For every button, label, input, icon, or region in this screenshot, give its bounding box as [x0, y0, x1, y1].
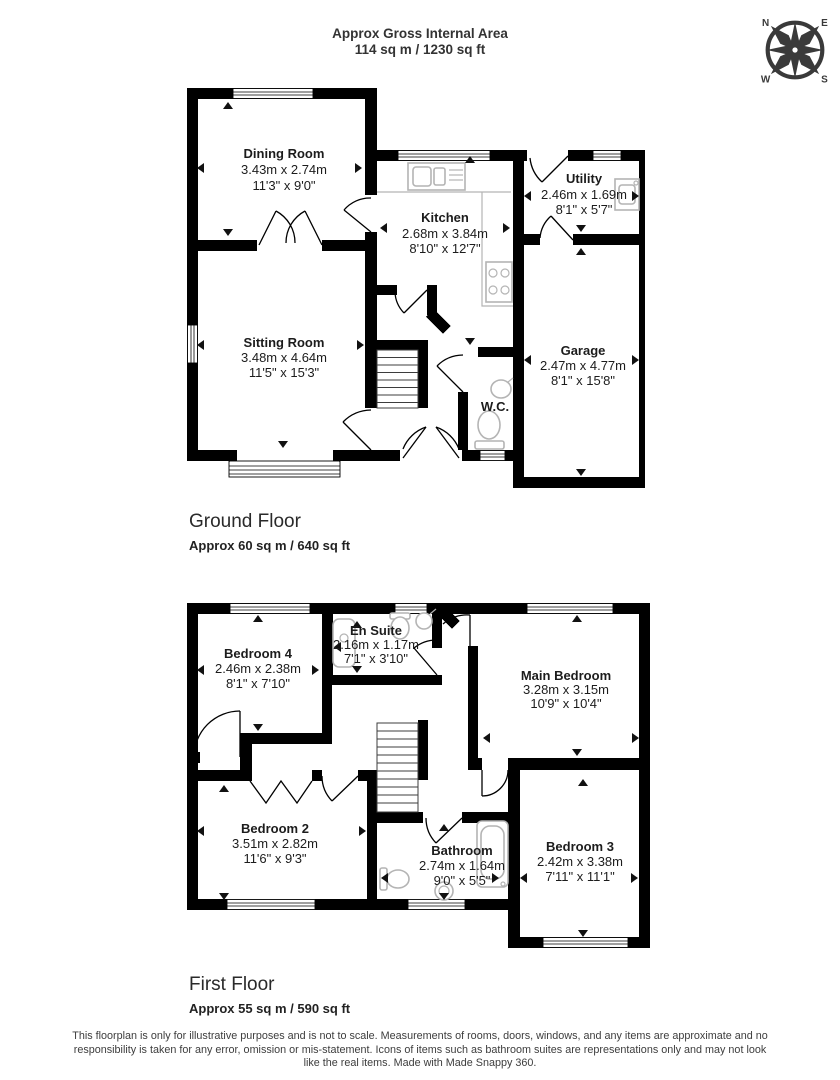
room-label-dining-name: Dining Room [244, 146, 325, 161]
compass-west-label: W [761, 75, 771, 86]
room-label-ensuite-imperial: 7'1" x 3'10" [344, 651, 408, 666]
front-door-icon [403, 427, 459, 458]
room-label-bedroom3-metric: 2.42m x 3.38m [537, 854, 623, 869]
room-label-kitchen-metric: 2.68m x 3.84m [402, 226, 488, 241]
room-label-main-bedroom-name: Main Bedroom [521, 668, 611, 683]
room-label-dining-imperial: 11'3" x 9'0" [252, 178, 315, 193]
door-icon [482, 770, 508, 796]
header-subtitle: 114 sq m / 1230 sq ft [0, 42, 840, 58]
disclaimer-text: This floorplan is only for illustrative … [70, 1030, 770, 1071]
first-floor-plan: Bedroom 4 2.46m x 2.38m 8'1" x 7'10" En … [185, 600, 655, 955]
room-label-bedroom2-name: Bedroom 2 [241, 821, 309, 836]
room-label-utility-name: Utility [566, 171, 603, 186]
room-label-utility-metric: 2.46m x 1.69m [541, 187, 627, 202]
compass-east-label: E [821, 18, 828, 29]
room-label-garage-name: Garage [561, 343, 606, 358]
room-label-bedroom3-imperial: 7'11" x 11'1" [545, 869, 615, 884]
wardrobe-doors-icon [250, 781, 312, 803]
ground-floor-area: Approx 60 sq m / 640 sq ft [189, 538, 350, 553]
header-title: Approx Gross Internal Area [0, 26, 840, 42]
bay-window-icon [229, 451, 340, 477]
window-icon [230, 604, 310, 614]
room-label-wc-name: W.C. [481, 399, 509, 414]
room-label-utility-imperial: 8'1" x 5'7" [556, 202, 613, 217]
room-label-bathroom-imperial: 9'0" x 5'5" [434, 873, 491, 888]
door-icon [530, 156, 568, 182]
room-label-ensuite-name: En Suite [350, 623, 402, 638]
window-icon [227, 900, 315, 910]
room-label-main-bedroom-metric: 3.28m x 3.15m [523, 682, 609, 697]
door-icon [437, 355, 463, 392]
window-icon [408, 900, 465, 910]
window-icon [395, 604, 427, 614]
room-label-bedroom2-metric: 3.51m x 2.82m [232, 836, 318, 851]
compass-south-label: S [821, 75, 828, 86]
window-icon [527, 604, 613, 614]
room-label-bathroom-metric: 2.74m x 1.64m [419, 858, 505, 873]
staircase [377, 723, 418, 812]
door-icon [540, 216, 573, 240]
room-label-kitchen-name: Kitchen [421, 210, 469, 225]
compass-rose-icon: N E W S [753, 8, 837, 92]
room-label-sitting-name: Sitting Room [244, 335, 325, 350]
door-icon [344, 198, 371, 232]
ground-floor-plan: Dining Room 3.43m x 2.74m 11'3" x 9'0" K… [185, 85, 645, 495]
first-floor-caption: First Floor Approx 55 sq m / 590 sq ft [189, 974, 350, 1016]
room-label-main-bedroom-imperial: 10'9" x 10'4" [530, 696, 602, 711]
door-icon [343, 410, 371, 450]
room-label-sitting-metric: 3.48m x 4.64m [241, 350, 327, 365]
room-label-bedroom4-metric: 2.46m x 2.38m [215, 661, 301, 676]
room-label-dining-metric: 3.43m x 2.74m [241, 162, 327, 177]
ground-floor-name: Ground Floor [189, 511, 350, 533]
compass-north-label: N [762, 18, 769, 29]
header: Approx Gross Internal Area 114 sq m / 12… [0, 26, 840, 58]
room-label-bathroom-name: Bathroom [431, 843, 492, 858]
toilet-icon [475, 411, 504, 449]
compass-star [767, 22, 824, 79]
footer: This floorplan is only for illustrative … [0, 1030, 840, 1071]
window-icon [233, 89, 313, 99]
room-label-bedroom4-name: Bedroom 4 [224, 646, 293, 661]
room-label-bedroom4-imperial: 8'1" x 7'10" [226, 676, 290, 691]
window-icon [480, 451, 505, 461]
room-label-bedroom3-name: Bedroom 3 [546, 839, 614, 854]
window-icon [188, 325, 198, 363]
room-label-kitchen-imperial: 8'10" x 12'7" [409, 241, 481, 256]
basin-icon [491, 378, 513, 398]
staircase [377, 350, 418, 408]
first-floor-name: First Floor [189, 974, 350, 996]
hob-icon [486, 262, 512, 302]
room-label-ensuite-metric: 2.16m x 1.17m [333, 637, 419, 652]
door-icon [322, 776, 358, 801]
door-icon [194, 711, 240, 757]
double-door-icon [259, 211, 322, 245]
room-label-garage-metric: 2.47m x 4.77m [540, 358, 626, 373]
kitchen-sink-icon [408, 163, 465, 190]
ground-floor-doors [259, 156, 573, 458]
first-floor-area: Approx 55 sq m / 590 sq ft [189, 1001, 350, 1016]
floorplan-page: Approx Gross Internal Area 114 sq m / 12… [0, 0, 840, 1080]
room-label-bedroom2-imperial: 11'6" x 9'3" [243, 851, 306, 866]
window-icon [543, 938, 628, 948]
door-icon [395, 290, 427, 313]
window-icon [593, 151, 621, 161]
room-label-sitting-imperial: 11'5" x 15'3" [249, 365, 320, 380]
room-label-garage-imperial: 8'1" x 15'8" [551, 373, 615, 388]
window-icon [398, 151, 490, 161]
ground-floor-caption: Ground Floor Approx 60 sq m / 640 sq ft [189, 511, 350, 553]
